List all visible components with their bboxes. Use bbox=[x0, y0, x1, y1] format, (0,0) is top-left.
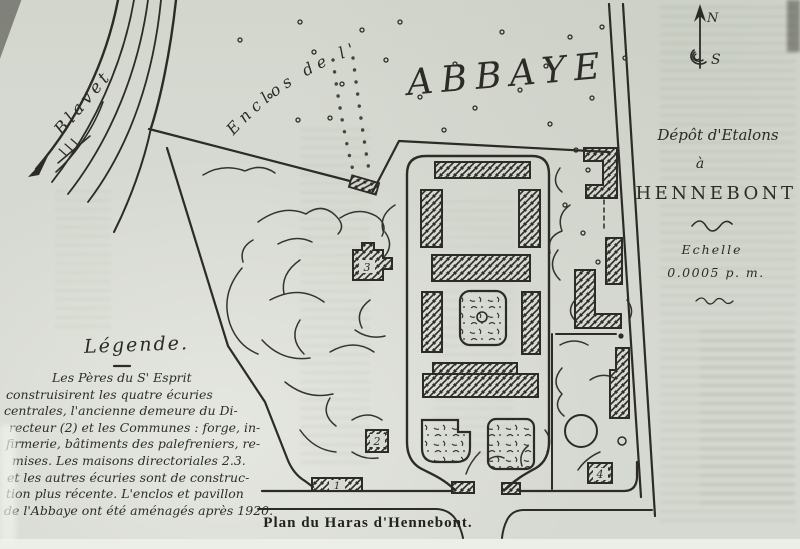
legend-line: recteur (2) et les Communes : forge, in- bbox=[4, 420, 268, 437]
river-lines bbox=[28, 0, 176, 232]
stable-building bbox=[421, 190, 442, 247]
building-number-1: 1 bbox=[334, 481, 340, 492]
flow-arrow-icon bbox=[58, 136, 90, 163]
river-label: Blavet bbox=[50, 66, 116, 140]
bottom-garden bbox=[422, 420, 470, 462]
main-yard bbox=[407, 156, 549, 489]
svg-text:Enclos de l': Enclos de l' bbox=[222, 38, 361, 139]
abbey-enclosure-name-label: ABBAYE bbox=[402, 46, 609, 105]
stable-building bbox=[432, 255, 530, 281]
stable-building bbox=[519, 190, 540, 247]
legend-line: mises. Les maisons directoriales 2.3. bbox=[4, 453, 268, 470]
stable-building bbox=[422, 292, 442, 352]
stable-building bbox=[435, 162, 530, 178]
legend-line: tion plus récente. L'enclos et pavillon bbox=[4, 486, 268, 503]
flourish-icon bbox=[692, 221, 732, 231]
bottom-garden bbox=[488, 419, 534, 469]
building-number-3: 3 bbox=[364, 261, 371, 274]
abbey-enclosure-prefix-label: Enclos de l' bbox=[222, 38, 361, 139]
depot-title-line3: HENNEBONT bbox=[635, 183, 796, 204]
east-buildings bbox=[565, 148, 629, 447]
scale-label: Echelle bbox=[681, 242, 743, 257]
building-number-2: 2 bbox=[373, 435, 381, 448]
legend-line: firmerie, bâtiments des palefreniers, re… bbox=[4, 436, 268, 453]
stable-building bbox=[522, 292, 540, 354]
compass-icon: N S bbox=[691, 4, 721, 68]
east-building bbox=[606, 238, 622, 284]
round-basin bbox=[565, 415, 597, 447]
legend-title: Légende. bbox=[84, 332, 190, 358]
map-caption: Plan du Haras d'Hennebont. bbox=[252, 515, 484, 532]
gate-post bbox=[452, 482, 474, 493]
large-building-step bbox=[433, 363, 517, 374]
scanned-book-page: 1 2 3 4 N S Blavet Enclos de l' ABBAYE bbox=[0, 0, 800, 549]
legend-line: construisirent les quatre écuries bbox=[4, 387, 268, 404]
legend-line: de l'Abbaye ont été aménagés après 1920. bbox=[4, 503, 268, 520]
gate-steps bbox=[349, 175, 379, 194]
legend-line: et les autres écuries sont de construc- bbox=[4, 470, 268, 487]
depot-title-line2: à bbox=[696, 156, 704, 172]
legend-text: Les Pères du S' Esprit construisirent le… bbox=[4, 370, 268, 519]
gate-post bbox=[502, 483, 520, 494]
legend-line: centrales, l'ancienne demeure du Di- bbox=[4, 403, 268, 420]
title-block: Dépôt d'Etalons à HENNEBONT Echelle 0.00… bbox=[635, 126, 796, 304]
central-garden bbox=[460, 291, 506, 345]
large-building bbox=[423, 374, 538, 397]
depot-title-line1: Dépôt d'Etalons bbox=[656, 126, 778, 144]
tree-dot-paths bbox=[333, 58, 370, 178]
c-shaped-building bbox=[584, 148, 617, 198]
north-label: N bbox=[706, 11, 719, 26]
small-well bbox=[618, 437, 626, 445]
building-number-4: 4 bbox=[596, 468, 604, 481]
scale-value: 0.0005 p. m. bbox=[667, 265, 765, 280]
legend-line: Les Pères du S' Esprit bbox=[4, 370, 268, 387]
stepped-building bbox=[610, 348, 629, 418]
flourish-icon bbox=[696, 298, 733, 304]
south-label: S bbox=[711, 52, 721, 68]
